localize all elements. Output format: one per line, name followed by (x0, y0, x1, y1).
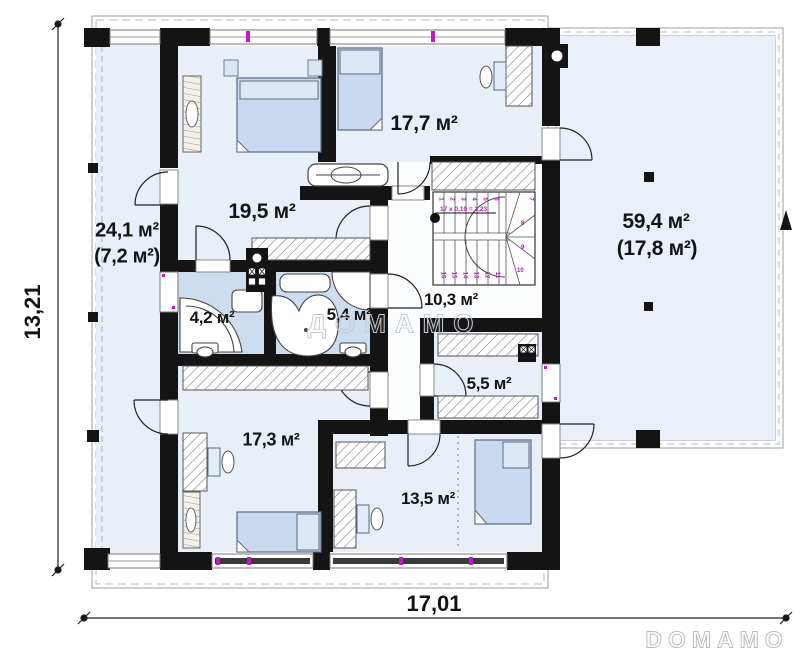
floor-plan: 24,1 м² (7,2 м²) 19,5 м² 17,7 м² 59,4 м²… (0, 0, 800, 660)
watermark-logo: DOMAMO (645, 627, 788, 654)
stair-step-number: 3 (460, 197, 466, 200)
stair-step-number: 14 (461, 272, 467, 279)
stair-step-number: 10 (517, 268, 524, 274)
room-label-attic-left: 24,1 м² (95, 220, 159, 243)
stair-step-number: 2 (449, 197, 455, 200)
stair-step-number: 6 (493, 197, 499, 200)
room-label-bedroom-1: 19,5 м² (228, 200, 295, 224)
dimension-width: 17,01 (406, 591, 461, 617)
dimension-height: 13,21 (20, 284, 46, 339)
stair-step-number: 4 (471, 197, 477, 200)
stair-step-number: 13 (472, 272, 478, 279)
stair-step-number: 7 (528, 197, 534, 200)
room-label-terrace-secondary: (17,8 м²) (617, 237, 698, 261)
window-dark-bands (215, 558, 504, 564)
watermark-center: ДОМАМО (307, 309, 482, 340)
stair-step-number: 11 (494, 272, 500, 278)
stair-step-number: 9 (521, 245, 524, 251)
room-label-hall: 10,3 м² (424, 290, 478, 310)
room-label-bedroom-3: 17,3 м² (242, 430, 299, 451)
room-label-wardrobe-room: 5,5 м² (467, 374, 512, 394)
stair-step-number: 15 (450, 272, 456, 279)
stair-step-number: 5 (482, 197, 488, 200)
room-label-terrace: 59,4 м² (622, 210, 689, 234)
stair-step-number: 16 (439, 272, 445, 279)
room-label-bedroom-2: 17,7 м² (390, 112, 457, 136)
stair-step-number: 12 (483, 272, 489, 279)
room-label-bedroom-4: 13,5 м² (401, 489, 455, 509)
stair-note: 17 x 0,19 = 3,23 (440, 206, 487, 213)
room-label-bathroom-small: 4,2 м² (190, 308, 235, 328)
stair-step-number: 8 (521, 221, 524, 227)
stair-step-number: 1 (438, 197, 444, 200)
room-label-attic-left-secondary: (7,2 м²) (94, 246, 160, 269)
